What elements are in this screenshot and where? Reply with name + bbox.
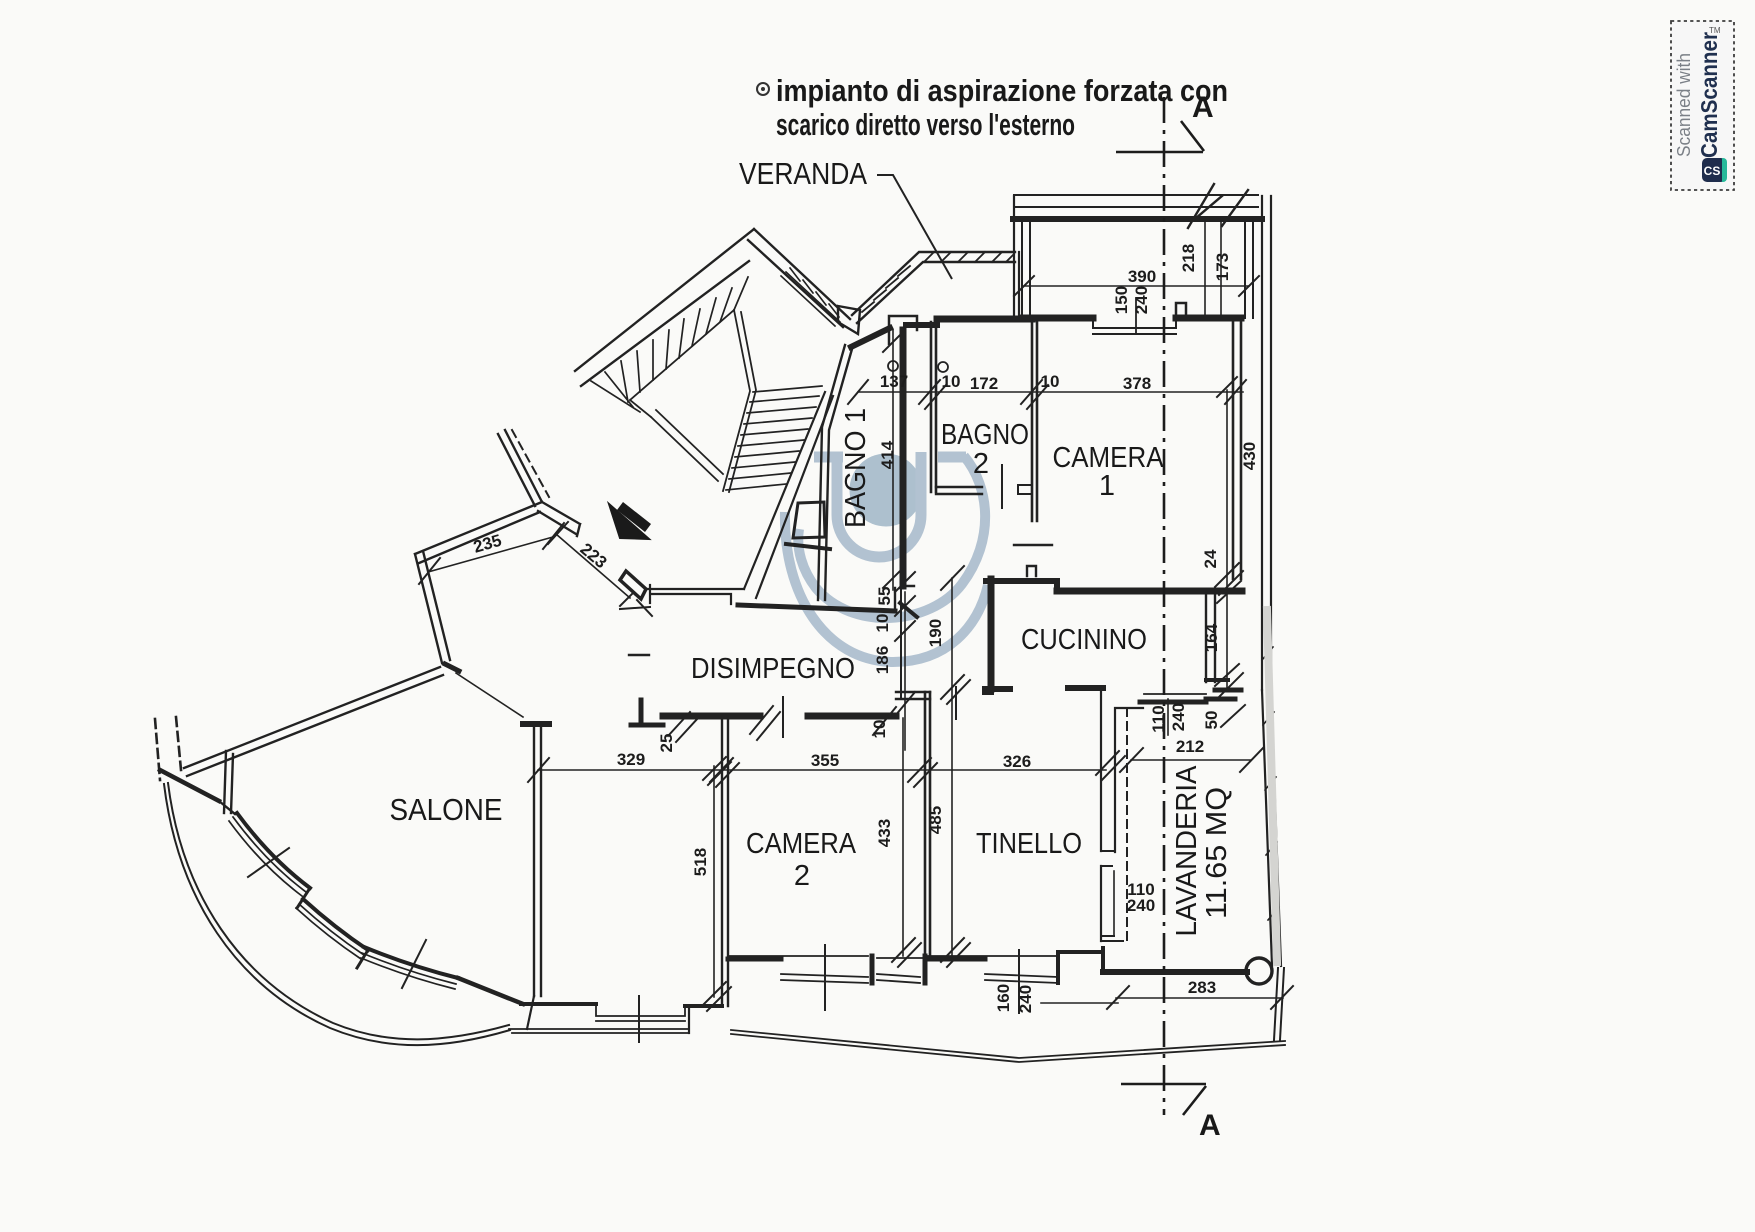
svg-text:10: 10 [870,720,889,739]
svg-text:CAMERA: CAMERA [746,828,857,860]
svg-text:240: 240 [1127,896,1155,915]
svg-text:240: 240 [1132,286,1151,314]
svg-text:55: 55 [875,587,894,606]
svg-text:326: 326 [1003,752,1031,771]
svg-text:LAVANDERIA: LAVANDERIA [1171,765,1203,937]
svg-text:414: 414 [878,440,897,469]
svg-text:150: 150 [1112,286,1131,314]
svg-text:TINELLO: TINELLO [976,828,1082,860]
svg-text:212: 212 [1176,737,1204,756]
svg-text:CUCININO: CUCININO [1021,624,1147,656]
svg-text:TM: TM [1709,26,1721,35]
svg-text:218: 218 [1179,244,1198,272]
svg-text:430: 430 [1240,442,1259,470]
svg-text:25: 25 [657,734,676,753]
svg-text:164: 164 [1202,623,1221,652]
svg-text:50: 50 [1202,711,1221,730]
svg-text:24: 24 [1201,549,1220,568]
svg-text:355: 355 [811,751,839,770]
svg-text:A: A [1199,1109,1221,1142]
svg-text:BAGNO: BAGNO [941,419,1029,451]
svg-text:283: 283 [1188,978,1216,997]
svg-text:DISIMPEGNO: DISIMPEGNO [691,653,855,685]
svg-text:impianto di aspirazione forzat: impianto di aspirazione forzata con [776,73,1228,108]
svg-text:Scanned with: Scanned with [1674,53,1694,157]
svg-text:10: 10 [873,614,892,633]
svg-text:485: 485 [926,806,945,834]
svg-text:390: 390 [1128,267,1156,286]
svg-text:378: 378 [1123,374,1151,393]
svg-text:186: 186 [873,646,892,674]
svg-text:A: A [1192,91,1214,124]
svg-text:137: 137 [880,372,908,391]
svg-text:160: 160 [994,984,1013,1012]
svg-text:329: 329 [617,750,645,769]
svg-text:2: 2 [973,448,989,480]
svg-text:518: 518 [691,848,710,876]
svg-text:190: 190 [926,619,945,647]
svg-text:172: 172 [970,374,998,393]
svg-text:240: 240 [1169,703,1188,731]
svg-text:BAGNO 1: BAGNO 1 [840,408,872,528]
svg-text:433: 433 [875,819,894,847]
svg-text:CamScanner: CamScanner [1696,32,1722,158]
svg-text:240: 240 [1016,985,1035,1013]
svg-text:173: 173 [1213,253,1232,281]
svg-text:2: 2 [794,860,810,892]
svg-text:scarico diretto verso l'estern: scarico diretto verso l'esterno [776,107,1075,142]
svg-text:SALONE: SALONE [390,792,503,827]
svg-text:1: 1 [1099,470,1115,502]
svg-text:VERANDA: VERANDA [739,156,867,191]
svg-text:10: 10 [942,372,961,391]
svg-text:10: 10 [1041,372,1060,391]
svg-text:11.65 MQ: 11.65 MQ [1201,787,1233,919]
svg-text:CS: CS [1704,164,1721,178]
